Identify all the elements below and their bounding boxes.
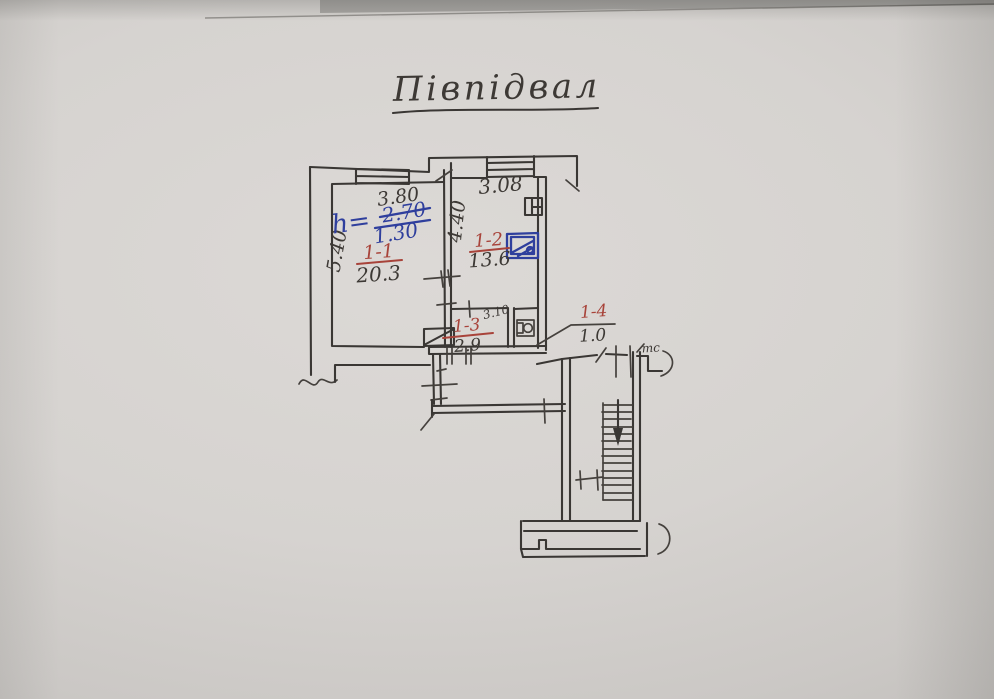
room-id: 1-4 xyxy=(579,301,608,323)
floor-plan-photo: Півпідвал 3.80 5.40 3.08 4.40 3.10 h= 2.… xyxy=(0,0,994,699)
stairwell-walls xyxy=(521,352,670,557)
wall-mark-ts: тс xyxy=(641,341,660,356)
room-area: 20.3 xyxy=(354,260,401,287)
staircase xyxy=(602,400,632,500)
dim-room3-width: 3.10 xyxy=(481,302,511,322)
floor-plan-drawing: Півпідвал 3.80 5.40 3.08 4.40 3.10 h= 2.… xyxy=(0,0,994,699)
photo-edge xyxy=(205,0,994,18)
toilet-icon xyxy=(517,320,534,336)
room-area: 13.6 xyxy=(468,248,512,273)
flue-icon xyxy=(525,198,542,215)
plan-title: Півпідвал xyxy=(392,66,602,110)
stairs-down-arrow-icon xyxy=(613,400,623,446)
height-note-prefix: h= xyxy=(330,206,372,241)
room-area: 1.0 xyxy=(579,325,607,346)
dim-room2-width: 3.08 xyxy=(477,171,523,199)
corridor-walls xyxy=(421,346,673,430)
dim-room2-depth: 4.40 xyxy=(444,199,470,244)
stove-icon xyxy=(507,233,538,258)
room-label-1-1: 1-1 20.3 xyxy=(354,240,402,288)
room-label-1-2: 1-2 13.6 xyxy=(468,229,512,272)
room-label-1-4: 1-4 1.0 xyxy=(537,301,615,347)
plan-title-group: Півпідвал xyxy=(392,66,602,113)
bottom-band-walls xyxy=(429,346,546,364)
room-area: 2.9 xyxy=(452,335,482,357)
